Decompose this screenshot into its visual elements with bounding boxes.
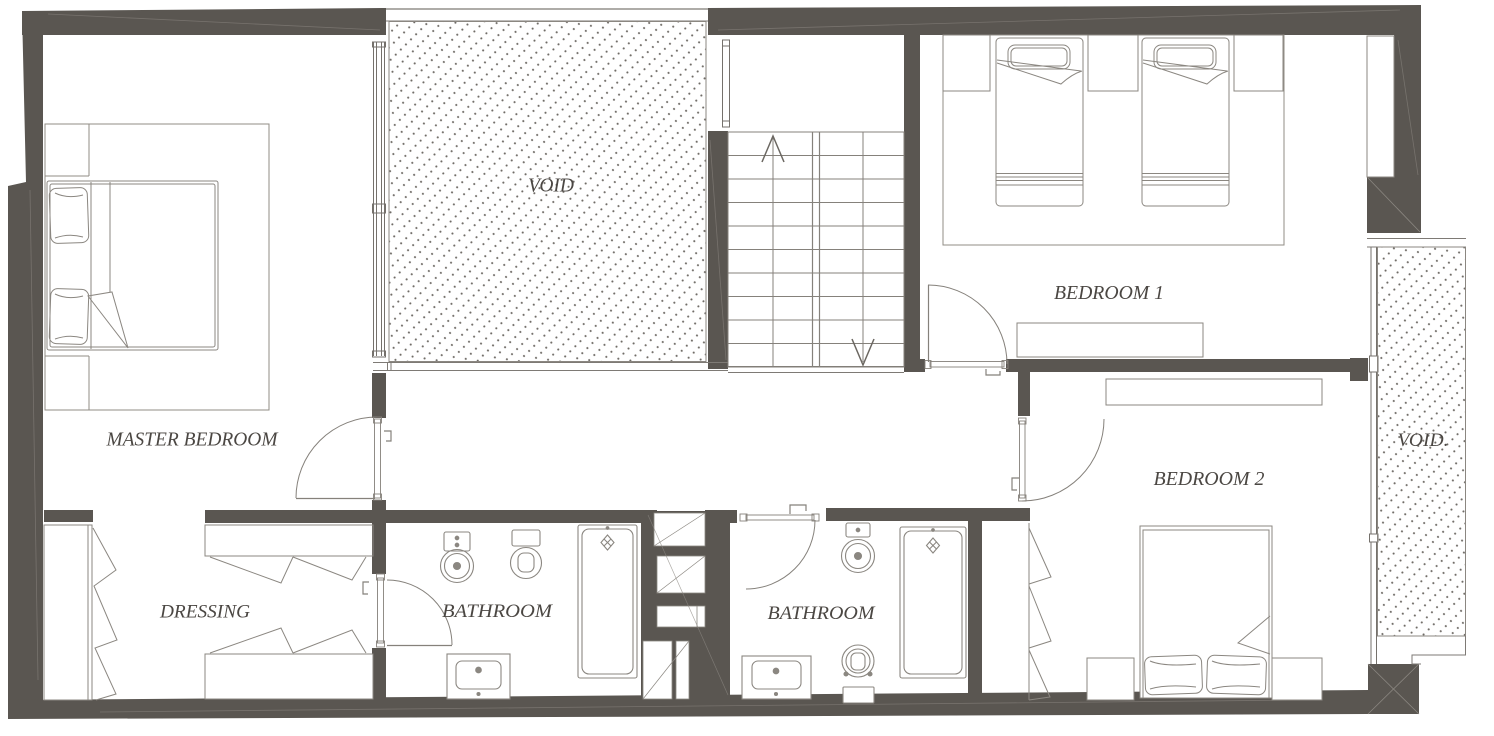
svg-text:BATHROOM: BATHROOM [768,603,876,624]
svg-text:BATHROOM: BATHROOM [442,601,553,622]
svg-text:VOID: VOID [528,175,575,197]
svg-text:BEDROOM 1: BEDROOM 1 [1054,282,1164,304]
svg-text:BEDROOM 2: BEDROOM 2 [1154,468,1265,490]
svg-text:DRESSING: DRESSING [159,602,250,623]
svg-text:MASTER BEDROOM: MASTER BEDROOM [106,429,279,451]
svg-text:VOID.: VOID. [1398,430,1449,451]
